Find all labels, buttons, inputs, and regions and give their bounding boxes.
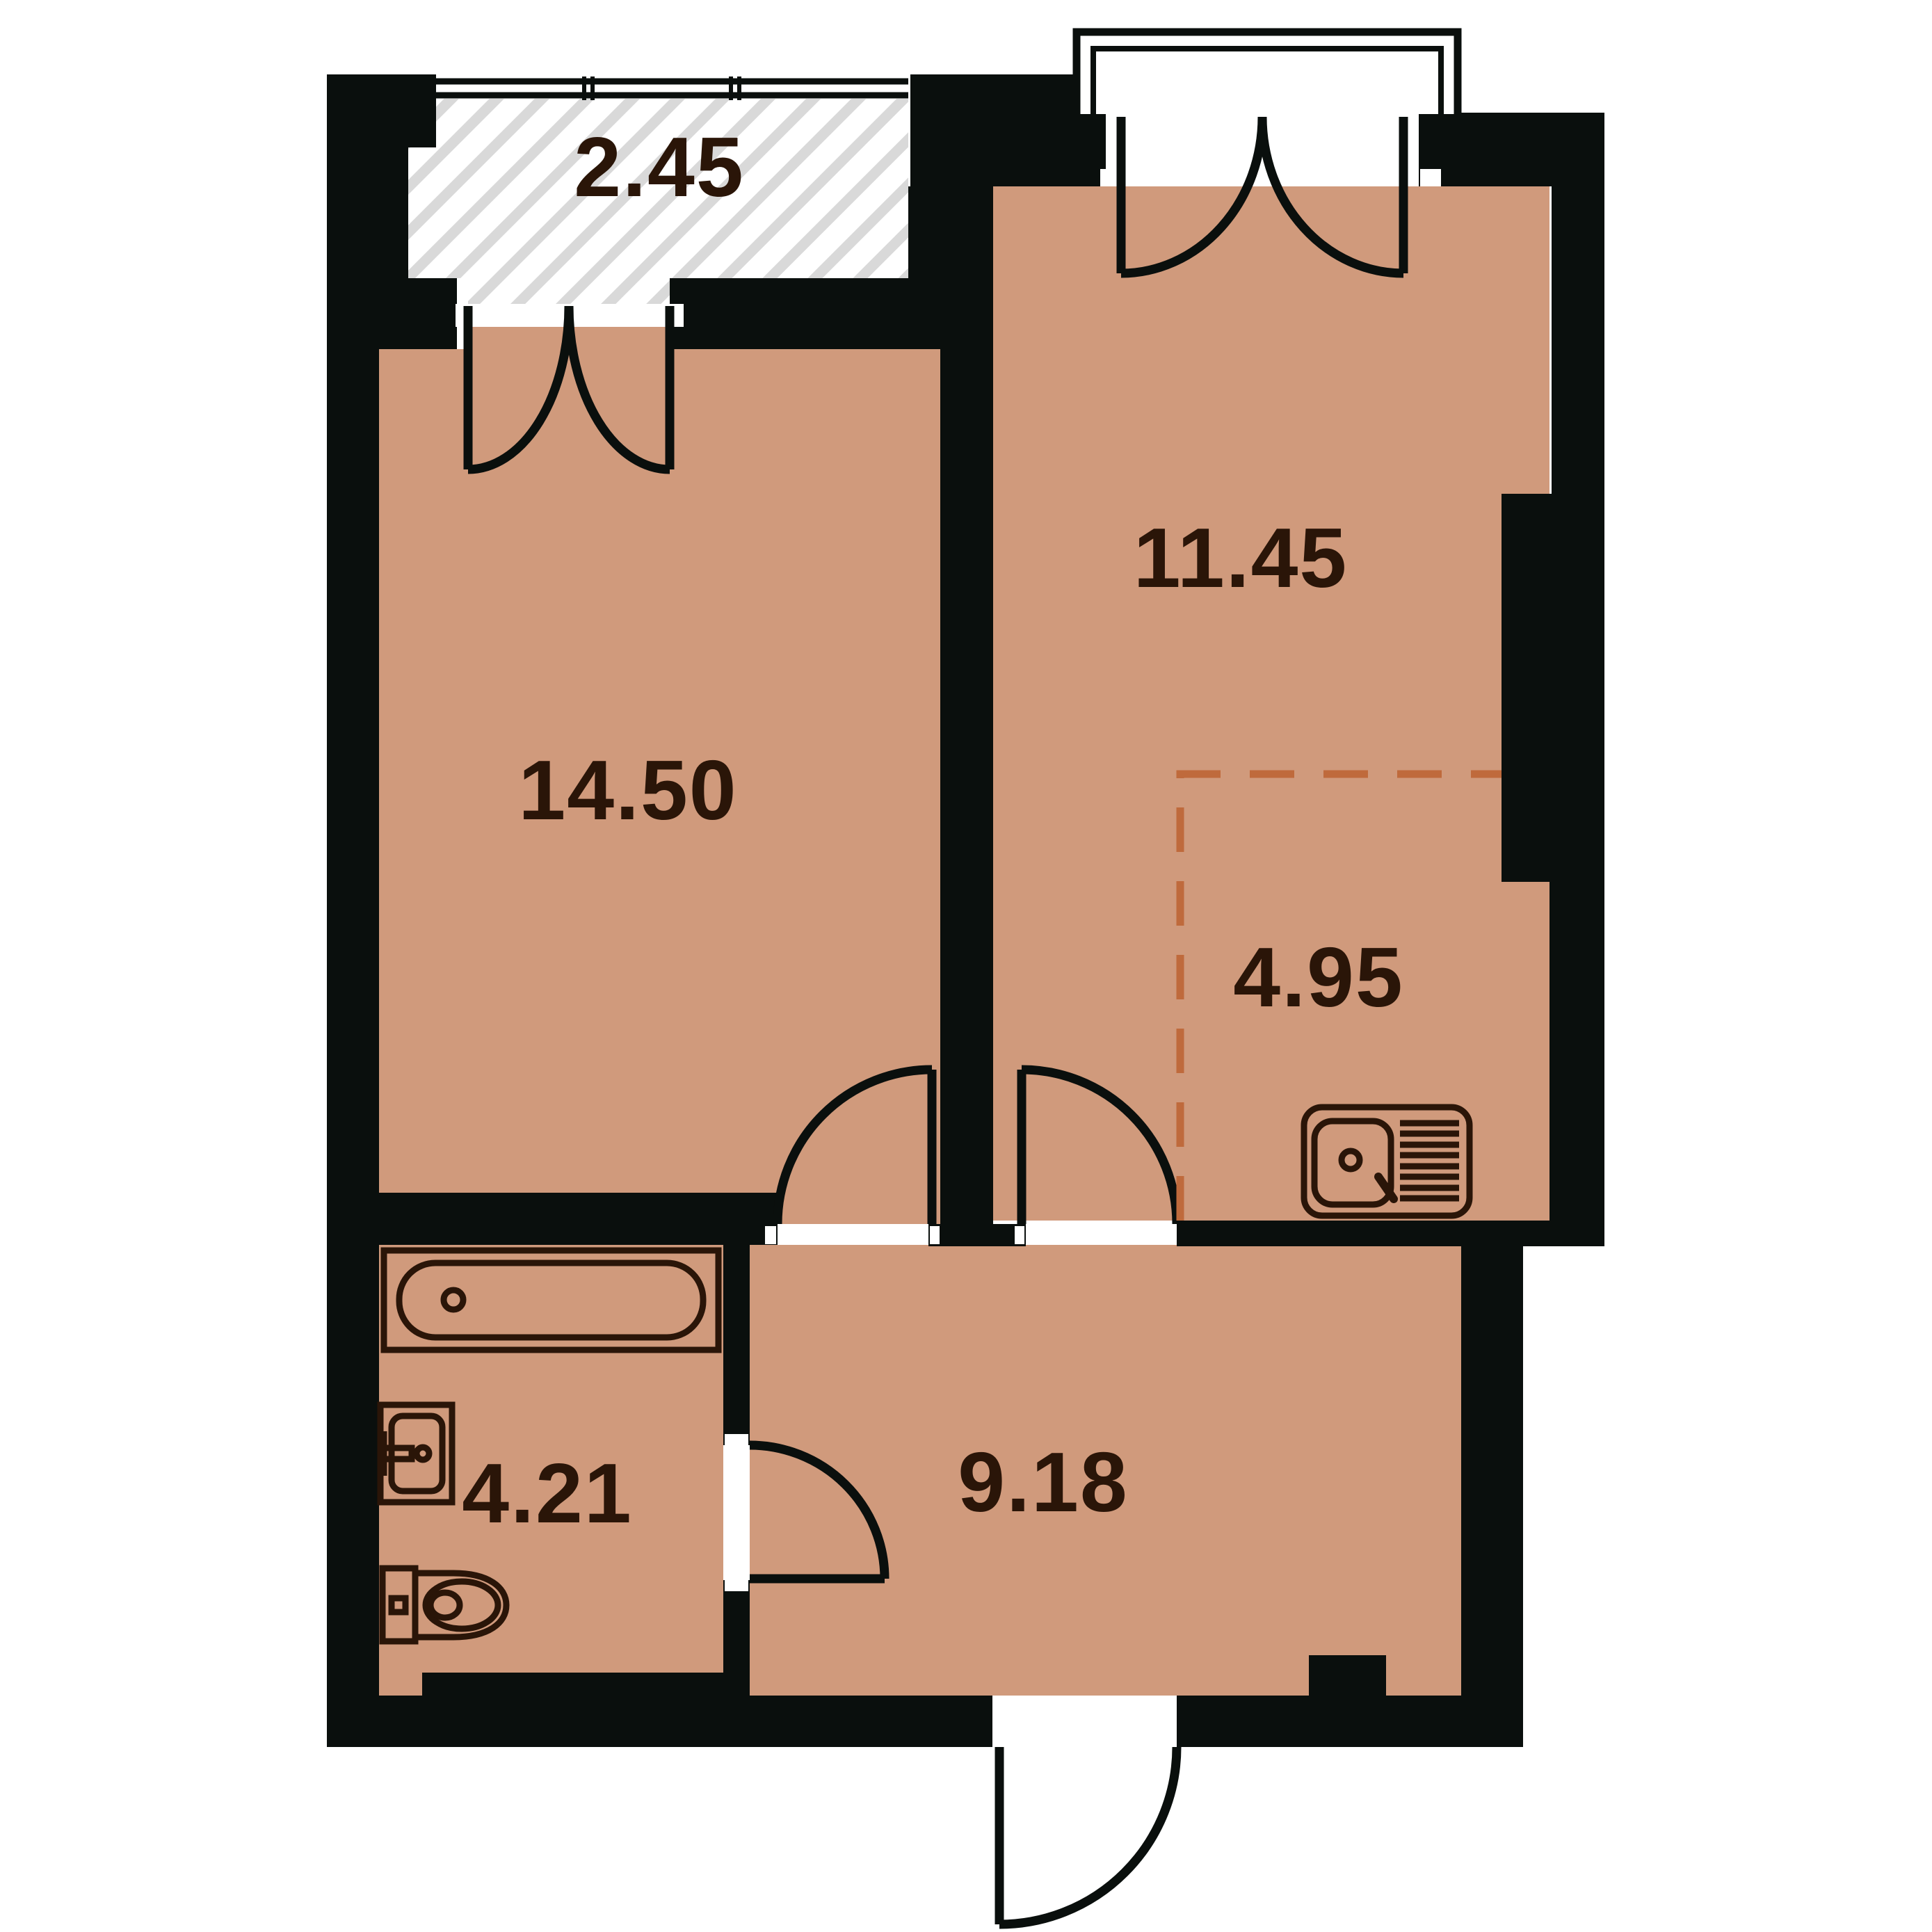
wall-room-divider	[940, 186, 993, 1224]
sill-bedroom-door-right	[1420, 169, 1441, 186]
railing-outer-line	[1077, 32, 1458, 114]
bedroom-balcony-railing	[1077, 32, 1458, 114]
sill-bathroom-door-top	[725, 1434, 748, 1445]
wall-balcony-bottom-left	[327, 278, 457, 349]
wall-kitchen-bottom	[1177, 1221, 1604, 1246]
sill-kitchen-door	[1015, 1226, 1024, 1244]
sill-living-door-outer	[765, 1226, 776, 1244]
wall-bottom-right	[1177, 1696, 1523, 1747]
living-room-area-label: 14.50	[518, 743, 737, 837]
hallway-area-label: 9.18	[958, 1435, 1128, 1529]
wall-hall-right	[1461, 1246, 1523, 1747]
balcony-area-label: 2.45	[574, 120, 744, 214]
door-swing-arc	[999, 1747, 1177, 1924]
balcony-window	[436, 77, 908, 100]
sill-bathroom-door-bottom	[725, 1580, 748, 1591]
wall-entrance-pilaster	[1309, 1655, 1386, 1696]
wall-right-upper	[1552, 113, 1604, 494]
bedroom-area-label: 11.45	[1134, 510, 1349, 605]
window-glazing-lines	[436, 81, 908, 95]
wall-hall-door-threshold	[928, 1224, 1026, 1246]
wall-right-column	[1502, 494, 1604, 882]
wall-balcony-bottom-right	[670, 278, 910, 349]
kitchen-area-label: 4.95	[1233, 930, 1403, 1024]
wall-bottom-left	[327, 1696, 992, 1747]
bedroom-kitchen-floor	[993, 186, 1549, 1221]
bathroom-area-label: 4.21	[462, 1446, 632, 1540]
wall-bathroom-top	[327, 1193, 778, 1245]
wall-right-lower	[1549, 882, 1604, 1246]
sill-living-door	[930, 1226, 940, 1244]
floor-plan-svg: 2.45 14.50 11.45 4.95 4.21 9.18	[0, 0, 1932, 1932]
wall-top-left-block	[327, 74, 436, 147]
entrance-door	[999, 1747, 1177, 1924]
wall-bath-hall-upper	[723, 1245, 750, 1445]
wall-balcony-left-mid	[327, 147, 408, 278]
wall-bathroom-step	[422, 1673, 750, 1696]
living-room-floor-door-strip	[778, 1193, 946, 1224]
floor-plan: 2.45 14.50 11.45 4.95 4.21 9.18	[0, 0, 1932, 1932]
